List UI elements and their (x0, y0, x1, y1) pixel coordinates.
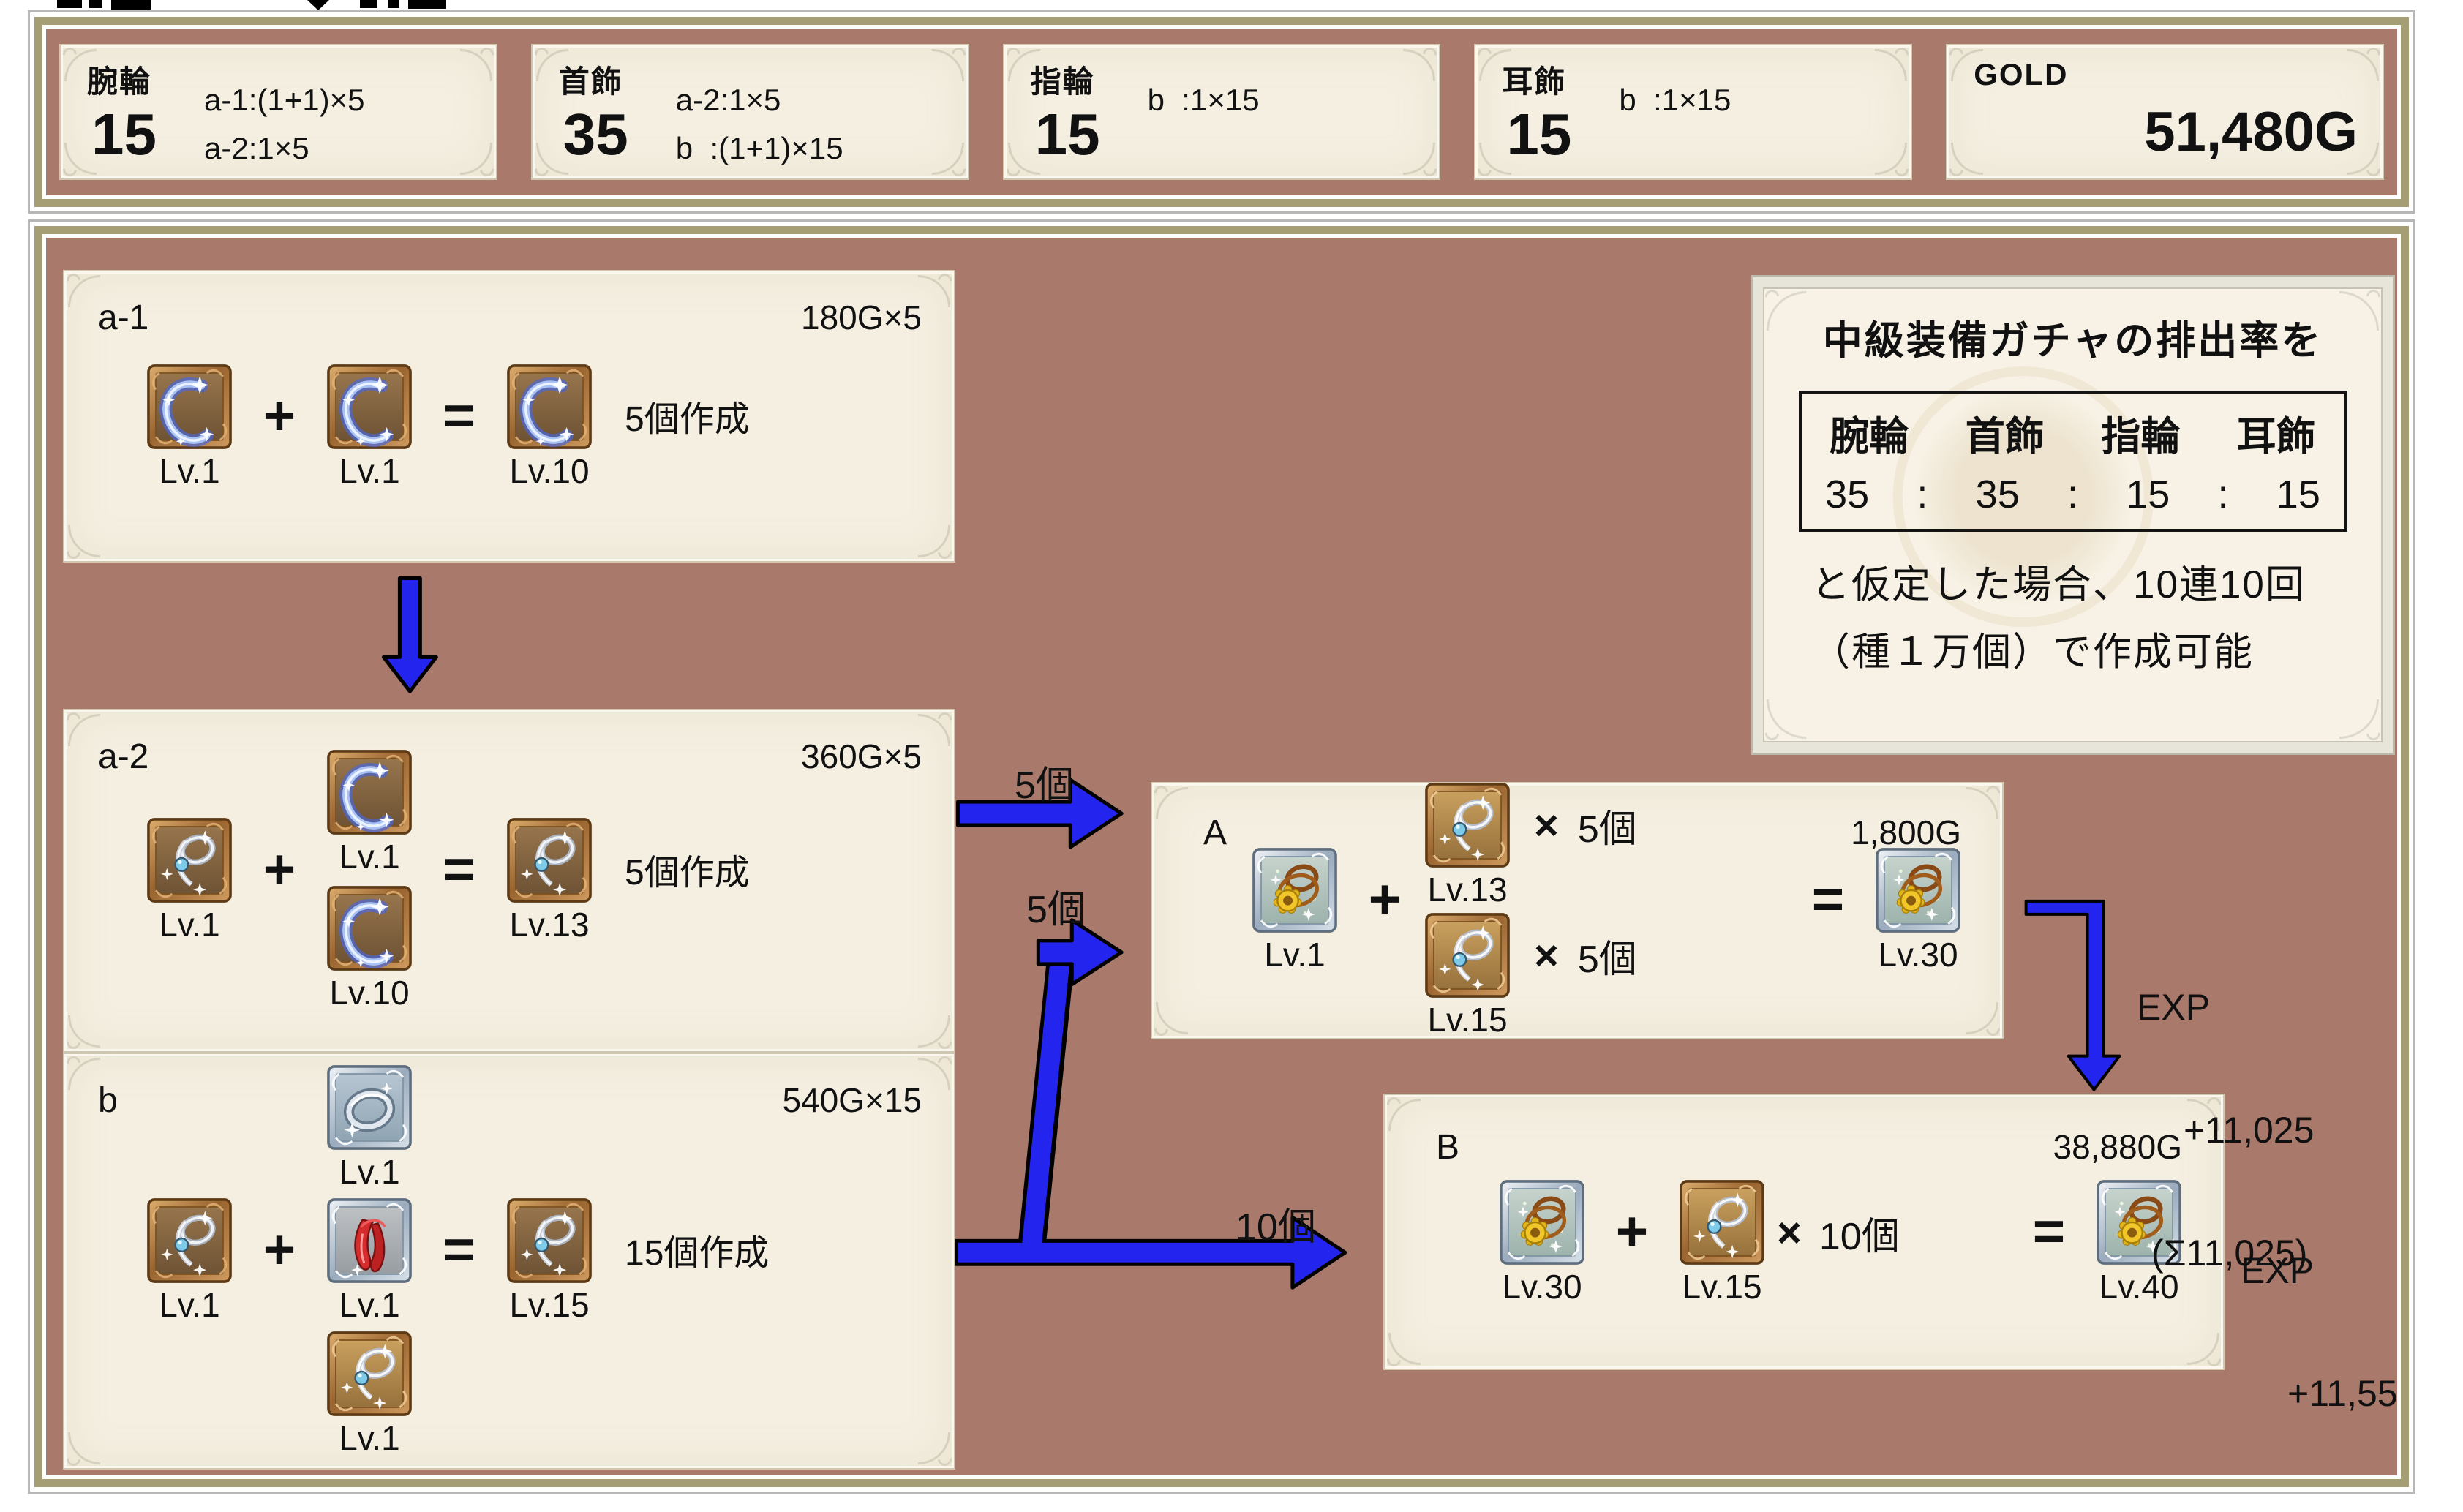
stat-label: 腕輪 (87, 57, 151, 102)
ingredient-item: Lv.1 (315, 1064, 424, 1192)
stat-label: 耳飾 (1502, 57, 1566, 102)
stat-value: 15 (1035, 101, 1100, 168)
silver-necklace-icon (146, 817, 233, 903)
arrow-label-a2-to-A: 5個 (1015, 754, 1074, 809)
plus-operator: + (244, 1218, 315, 1282)
bracelet-icon (326, 364, 413, 450)
item-level-label: Lv.1 (159, 905, 220, 944)
stat-row: 腕輪 15 a-1:(1+1)×5a-2:1×5 首飾 35 a-2:1×5b … (46, 29, 2397, 195)
gacha-rate-panel: 中級装備ガチャの排出率を 腕輪首飾指輪耳飾 35:35:15:15 と仮定した場… (1753, 277, 2393, 753)
item-level-label: Lv.1 (339, 451, 400, 491)
stat-value: 15 (91, 101, 157, 168)
ingredient-item: Lv.15 (1667, 1179, 1777, 1306)
stat-box-earring: 耳飾 15 b :1×15 (1474, 44, 1912, 180)
equals-operator: = (424, 838, 495, 901)
item-level-label: Lv.13 (1427, 870, 1507, 909)
crafting-flowchart-page: 腕輪 15 a-1:(1+1)×5a-2:1×5 首飾 35 a-2:1×5b … (0, 0, 2463, 1512)
item-level-label: Lv.1 (339, 1152, 400, 1192)
ingredient-item: Lv.1 (135, 817, 244, 944)
silver-necklace-icon (506, 1197, 593, 1284)
ingredient-item: Lv.10 (315, 885, 424, 1012)
stat-detail: a-1:(1+1)×5a-2:1×5 (204, 76, 364, 173)
exp-annotation-B: EXP +11,550 (Σ22,575) (2241, 1168, 2397, 1475)
gacha-rate-values: 35:35:15:15 (1802, 472, 2344, 517)
ingredient-item: Lv.1 (315, 1331, 424, 1458)
A-to-B-arrow (2026, 901, 2120, 1090)
result-item: Lv.13 (495, 817, 604, 944)
equals-operator: = (424, 384, 495, 448)
a1-to-a2-arrow (383, 578, 436, 691)
craft-count-note: 5個作成 (625, 390, 750, 441)
silver-necklace-icon (1424, 782, 1511, 868)
craft-count-note: 5個作成 (625, 843, 750, 895)
ingredient-count: 5個 (1578, 782, 1637, 868)
stat-detail: b :1×15 (1148, 76, 1260, 124)
item-level-label: Lv.1 (1264, 935, 1325, 974)
silver-necklace-icon (146, 1197, 233, 1284)
b-to-A-arrow-outline (1031, 950, 1061, 1255)
stat-box-necklace: 首飾 35 a-2:1×5b :(1+1)×15 (531, 44, 969, 180)
recipe-box-b: b 540G×15 Lv.1 + Lv.1 Lv.1 Lv.1 = Lv.15 … (63, 1053, 955, 1470)
gacha-panel-heading: 中級装備ガチャの排出率を (1763, 308, 2383, 366)
ingredient-item: Lv.15 (1420, 912, 1515, 1039)
summary-bar-frame: 腕輪 15 a-1:(1+1)×5a-2:1×5 首飾 35 a-2:1×5b … (34, 17, 2409, 207)
stat-label: 指輪 (1031, 57, 1095, 102)
ingredient-item: Lv.13 (1420, 782, 1515, 909)
b-to-A-arrow-shaft (1031, 952, 1061, 1253)
stat-value: 15 (1506, 101, 1571, 168)
recipe-box-B: B 38,880G Lv.30 + Lv.15 × 10個 = Lv.40 (1383, 1094, 2225, 1370)
stat-detail: b :1×15 (1619, 76, 1731, 124)
item-level-label: Lv.10 (329, 973, 409, 1012)
ingredient-item: Lv.1 (1240, 847, 1350, 974)
recipe-box-A: A 1,800G Lv.1 + Lv.13 × 5個 Lv.15 (1151, 782, 2004, 1039)
silver-necklace-icon (506, 817, 593, 903)
ingredient-item: Lv.1 (315, 364, 424, 491)
result-item: Lv.15 (495, 1197, 604, 1325)
item-level-label: Lv.15 (1682, 1267, 1761, 1306)
ingredient-item: Lv.1 (135, 364, 244, 491)
summary-bar: 腕輪 15 a-1:(1+1)×5a-2:1×5 首飾 35 a-2:1×5b … (28, 10, 2415, 214)
plus-operator: + (1597, 1200, 1667, 1263)
stat-value: 51,480G (2144, 100, 2358, 164)
item-level-label: Lv.1 (339, 1285, 400, 1325)
plus-operator: + (244, 384, 315, 448)
item-level-label: Lv.1 (339, 1418, 400, 1458)
exp-label: EXP (2241, 1250, 2397, 1291)
gold-necklace-icon (1252, 847, 1338, 933)
ingredient-count: 5個 (1578, 912, 1637, 998)
item-level-label: Lv.10 (509, 451, 589, 491)
exp-gain: +11,550 (2241, 1373, 2397, 1414)
bracelet-icon (326, 885, 413, 971)
bracelet-icon (326, 749, 413, 835)
equals-operator: = (424, 1218, 495, 1282)
arrow-label-b-to-B: 10個 (1236, 1196, 1316, 1251)
item-level-label: Lv.15 (509, 1285, 589, 1325)
stat-detail: a-2:1×5b :(1+1)×15 (676, 76, 843, 173)
ingredient-count: 10個 (1819, 1189, 1900, 1276)
times-operator: × (1534, 782, 1559, 868)
bracelet-icon (506, 364, 593, 450)
red-shoes-icon (326, 1197, 413, 1284)
stat-box-gold: GOLD 51,480G (1946, 44, 2384, 180)
gacha-panel-note-1: と仮定した場合、10連10回 (1811, 554, 2383, 609)
craft-count-note: 15個作成 (625, 1224, 769, 1275)
result-item: Lv.30 (1863, 847, 1973, 974)
ingredient-item: Lv.1 (315, 749, 424, 876)
ingredient-item: Lv.30 (1487, 1179, 1597, 1306)
item-level-label: Lv.30 (1878, 935, 1958, 974)
gacha-rate-headers: 腕輪首飾指輪耳飾 (1802, 404, 2344, 462)
gacha-panel-note-2: （種１万個）で作成可能 (1811, 621, 2383, 677)
recipe-box-a1: a-1 180G×5 Lv.1 + Lv.1 = Lv.10 5個作成 (63, 270, 955, 563)
flowchart-frame: a-1 180G×5 Lv.1 + Lv.1 = Lv.10 5個作成 a-2 (34, 226, 2409, 1487)
gold-necklace-icon (1499, 1179, 1585, 1265)
times-operator: × (1777, 1189, 1802, 1276)
exp-label: EXP (2137, 987, 2314, 1028)
flowchart: a-1 180G×5 Lv.1 + Lv.1 = Lv.10 5個作成 a-2 (28, 219, 2415, 1494)
ingredient-item: Lv.1 (315, 1197, 424, 1325)
gacha-rate-table: 腕輪首飾指輪耳飾 35:35:15:15 (1799, 391, 2347, 532)
silver-necklace-icon (1679, 1179, 1765, 1265)
exp-gain: +11,025 (2137, 1110, 2314, 1151)
item-level-label: Lv.15 (1427, 1000, 1507, 1039)
item-level-label: Lv.13 (509, 905, 589, 944)
result-item: Lv.10 (495, 364, 604, 491)
plus-operator: + (1350, 868, 1420, 931)
stat-label: GOLD (1974, 57, 2068, 92)
stat-value: 35 (563, 101, 628, 168)
item-level-label: Lv.1 (159, 1285, 220, 1325)
times-operator: × (1534, 912, 1559, 998)
arrow-label-b-to-A: 5個 (1026, 879, 1086, 933)
gold-necklace-icon (1875, 847, 1961, 933)
bracelet-icon (146, 364, 233, 450)
item-level-label: Lv.30 (1502, 1267, 1582, 1306)
ring-icon (326, 1064, 413, 1151)
silver-necklace-icon (1424, 912, 1511, 998)
stat-box-bracelet: 腕輪 15 a-1:(1+1)×5a-2:1×5 (59, 44, 497, 180)
plus-operator: + (244, 838, 315, 901)
item-level-label: Lv.1 (159, 451, 220, 491)
silver-necklace-icon (326, 1331, 413, 1417)
stat-box-ring: 指輪 15 b :1×15 (1003, 44, 1441, 180)
item-level-label: Lv.1 (339, 837, 400, 876)
equals-operator: = (1793, 868, 1863, 931)
recipe-box-a2: a-2 360G×5 Lv.1 + Lv.1 Lv.10 = Lv.13 5個作… (63, 709, 955, 1053)
equals-operator: = (2014, 1200, 2084, 1263)
ingredient-item: Lv.1 (135, 1197, 244, 1325)
stat-label: 首飾 (559, 57, 623, 102)
